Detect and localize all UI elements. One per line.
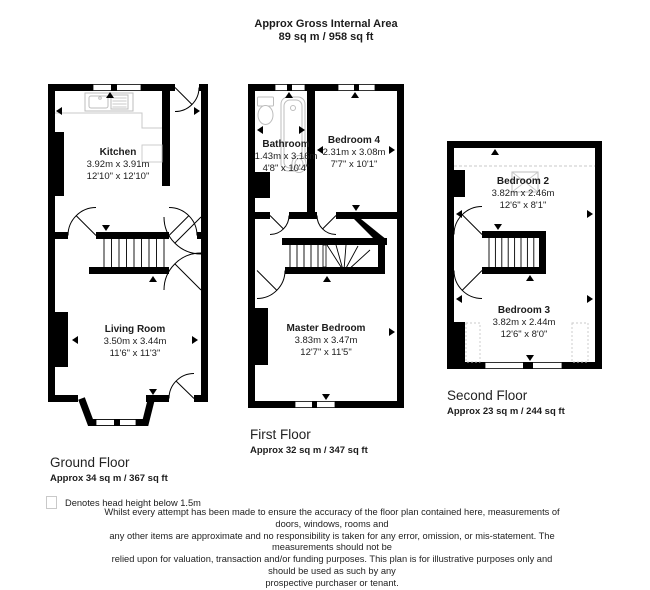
- room-metric: 2.31m x 3.08m: [294, 147, 414, 159]
- floor-area: Approx 34 sq m / 367 sq ft: [50, 473, 168, 484]
- floor-area: Approx 23 sq m / 244 sq ft: [447, 406, 565, 417]
- bay-window: [96, 419, 136, 426]
- room-metric: 3.82m x 2.44m: [464, 317, 584, 329]
- floor-label-ground: Ground Floor Approx 34 sq m / 367 sq ft: [50, 455, 168, 484]
- disclaimer-line: Whilst every attempt has been made to en…: [97, 507, 567, 531]
- floor-title: First Floor: [250, 427, 368, 442]
- disclaimer-line: prospective purchaser or tenant.: [97, 578, 567, 590]
- hall-double-door-arcs: [164, 217, 201, 290]
- legend-text: Denotes head height below 1.5m: [65, 498, 201, 508]
- room-name: Bedroom 4: [294, 135, 414, 147]
- first-floor-drawing: [248, 84, 404, 414]
- room-name: Master Bedroom: [266, 323, 386, 335]
- landing-double-door-arcs: [454, 207, 482, 299]
- room-imperial: 12'6" x 8'0": [464, 329, 584, 341]
- ground-floor-drawing: [48, 84, 208, 440]
- room-label-bedroom-2: Bedroom 2 3.82m x 2.46m 12'6" x 8'1": [463, 176, 583, 212]
- ground-walls: [48, 84, 208, 423]
- page-subtitle: 89 sq m / 958 sq ft: [176, 31, 476, 44]
- room-metric: 3.50m x 3.44m: [75, 336, 195, 348]
- room-label-bedroom-4: Bedroom 4 2.31m x 3.08m 7'7" x 10'1": [294, 135, 414, 171]
- page-header: Approx Gross Internal Area 89 sq m / 958…: [176, 18, 476, 44]
- floor-label-first: First Floor Approx 32 sq m / 347 sq ft: [250, 427, 368, 456]
- room-label-kitchen: Kitchen 3.92m x 3.91m 12'10" x 12'10": [58, 147, 178, 183]
- room-label-bedroom-3: Bedroom 3 3.82m x 2.44m 12'6" x 8'0": [464, 305, 584, 341]
- room-imperial: 12'6" x 8'1": [463, 200, 583, 212]
- room-imperial: 12'10" x 12'10": [58, 171, 178, 183]
- room-name: Bedroom 3: [464, 305, 584, 317]
- room-metric: 3.92m x 3.91m: [58, 159, 178, 171]
- toilet-icon: [258, 97, 274, 125]
- disclaimer-line: relied upon for valuation, transaction a…: [97, 554, 567, 578]
- floor-area: Approx 32 sq m / 347 sq ft: [250, 445, 368, 456]
- ground-stairs: [104, 239, 164, 267]
- room-name: Kitchen: [58, 147, 178, 159]
- room-metric: 3.82m x 2.46m: [463, 188, 583, 200]
- bathroom-door-arc: [270, 216, 289, 235]
- room-imperial: 12'7" x 11'5": [266, 347, 386, 359]
- front-door-arc: [175, 88, 199, 112]
- room-name: Living Room: [75, 324, 195, 336]
- floor-title: Ground Floor: [50, 455, 168, 470]
- room-name: Bedroom 2: [463, 176, 583, 188]
- bedroom3-window: [485, 362, 562, 369]
- room-metric: 3.83m x 3.47m: [266, 335, 386, 347]
- room-imperial: 11'6" x 11'3": [75, 348, 195, 360]
- second-stairs: [489, 238, 534, 267]
- kitchen-window: [93, 84, 141, 91]
- floor-title: Second Floor: [447, 388, 565, 403]
- room-label-master-bedroom: Master Bedroom 3.83m x 3.47m 12'7" x 11'…: [266, 323, 386, 359]
- room-imperial: 7'7" x 10'1": [294, 159, 414, 171]
- hall-door-arcs: [68, 208, 197, 236]
- disclaimer-line: any other items are approximate and no r…: [97, 531, 567, 555]
- head-height-swatch-icon: [46, 496, 57, 509]
- living-room-door-arc: [169, 374, 194, 399]
- floor-label-second: Second Floor Approx 23 sq m / 244 sq ft: [447, 388, 565, 417]
- bedroom4-door-arc: [317, 216, 336, 235]
- room-label-living-room: Living Room 3.50m x 3.44m 11'6" x 11'3": [75, 324, 195, 360]
- disclaimer: Whilst every attempt has been made to en…: [97, 507, 567, 590]
- page-title: Approx Gross Internal Area: [176, 18, 476, 31]
- master-bedroom-door-arc: [257, 271, 285, 299]
